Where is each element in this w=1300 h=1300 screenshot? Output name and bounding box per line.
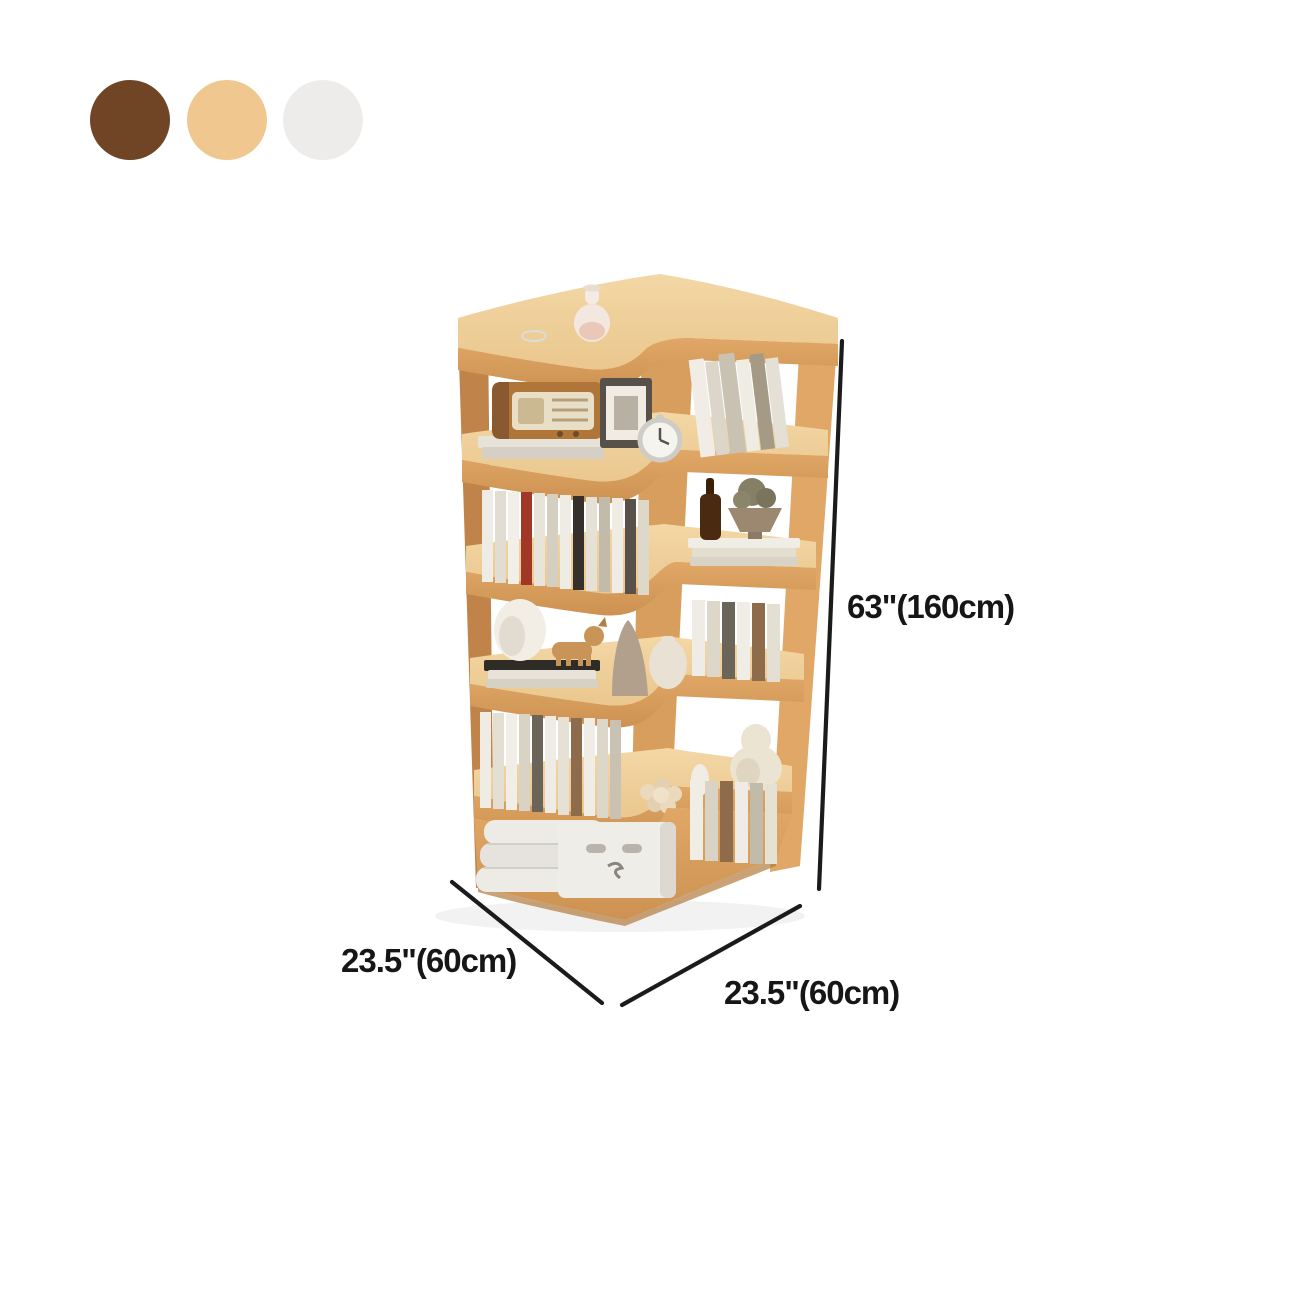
planter-and-bottle bbox=[688, 478, 800, 566]
vintage-radio bbox=[492, 382, 604, 439]
height-dimension-label: 63"(160cm) bbox=[847, 588, 1014, 626]
footed-bowl bbox=[728, 508, 782, 532]
corner-bookshelf-illustration bbox=[0, 0, 1300, 1300]
leaning-books-right bbox=[688, 347, 789, 457]
product-dimension-image: 63"(160cm) 23.5"(60cm) 23.5"(60cm) bbox=[0, 0, 1300, 1300]
gourd-vase bbox=[730, 724, 782, 791]
storage-box bbox=[558, 822, 676, 898]
depth-right-dimension-label: 23.5"(60cm) bbox=[724, 974, 899, 1012]
depth-left-dimension-label: 23.5"(60cm) bbox=[341, 942, 516, 980]
amber-bottle bbox=[700, 494, 721, 540]
bookshelf bbox=[458, 274, 838, 926]
book-row bbox=[480, 712, 621, 819]
